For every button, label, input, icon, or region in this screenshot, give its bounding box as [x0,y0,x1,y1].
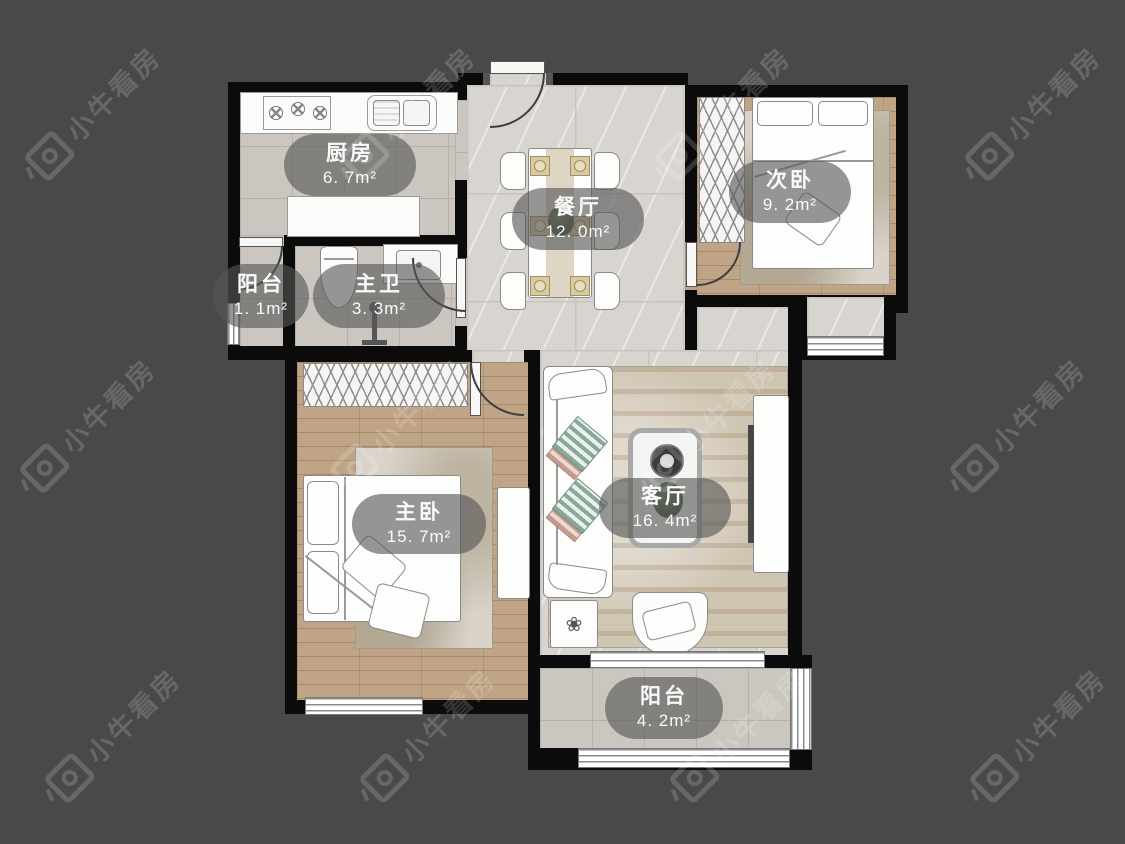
floorplan-screenshot: { "watermark": { "text": "小牛看房" }, "icon… [0,0,1125,844]
watermark: 小牛看房 [41,658,188,805]
watermark-logo-icon [18,441,72,495]
flower-icon: ❀ [566,612,583,637]
watermark-logo-icon [948,441,1002,495]
dining-chair [500,272,526,310]
kettle-lid [660,454,674,468]
niche-window [807,336,884,356]
balcony-bottom-floor [540,668,790,748]
stove-burner-icon [291,102,305,116]
watermark-logo-icon [358,751,412,805]
place-setting [570,276,590,296]
second-bedroom-door-leaf [686,242,697,287]
place-setting [530,276,550,296]
sofa-back-line [556,400,558,565]
tv-screen [748,425,754,543]
watermark: 小牛看房 [961,36,1108,183]
entry-door-post [546,73,553,85]
place-setting [530,216,550,236]
dining-chair [500,152,526,190]
niche-floor [807,297,884,338]
side-table: ❀ [550,600,598,648]
balcony-sliding-door [590,651,765,668]
dining-chair [594,212,620,250]
watermark: 小牛看房 [946,348,1093,495]
toilet-tank-line [324,258,354,260]
shower-fixture-head [369,302,380,313]
master-bedroom-door-opening [472,350,524,362]
balcony-left-window [227,303,240,345]
dining-chair [500,212,526,250]
shower-fixture-pipe [372,310,377,342]
watermark-logo-icon [963,129,1017,183]
watermark-logo-icon [23,129,77,183]
entry-door-post [483,73,490,85]
watermark: 小牛看房 [21,36,168,183]
bed-headboard-line [344,477,346,620]
bed-pillow [307,481,339,545]
bed-sheet-line [753,160,873,162]
bed-pillow [818,101,868,126]
watermark: 小牛看房 [966,658,1113,805]
stove-burner-icon [269,106,283,120]
watermark-logo-icon [43,751,97,805]
dining-chair [594,152,620,190]
coffee-table-plant [653,482,683,518]
dining-chair [594,272,620,310]
kitchen-island [287,196,420,237]
master-bedroom-dresser [497,487,530,599]
sink-basin-left [373,100,400,126]
balcony-bottom-window [578,748,790,768]
place-setting [530,156,550,176]
tv-stand [753,395,789,573]
shower-fixture-bar [362,340,387,345]
master-bedroom-window [305,697,423,715]
stove-burner-icon [313,106,327,120]
second-bedroom-wardrobe [699,97,745,243]
master-bedroom-wardrobe [303,363,468,407]
sink-basin-right [403,100,430,126]
place-setting [570,156,590,176]
table-plant [548,206,574,236]
watermark-logo-icon [968,751,1022,805]
bed-pillow [757,101,813,126]
watermark: 小牛看房 [16,348,163,495]
balcony-right-window [790,668,812,750]
